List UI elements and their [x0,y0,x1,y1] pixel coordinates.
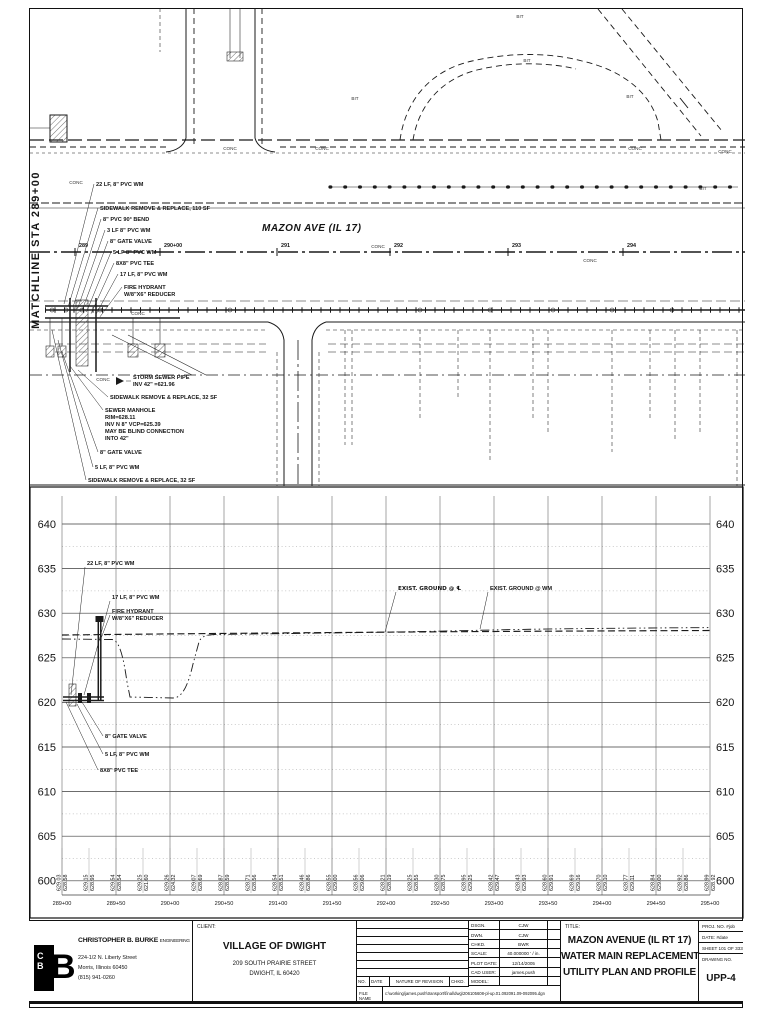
scale-label: SCALE: [469,949,500,957]
spot-elevation: 628.95 [462,875,468,892]
company-name-text: CHRISTOPHER B. BURKE [78,937,158,944]
title-section: TITLE: MAZON AVENUE (IL RT 17) WATER MAI… [561,921,699,1001]
project-number: PROJ. NO. #job [699,921,743,932]
spot-elevation: 629.11 [630,875,636,891]
cad-user-label: CAD USER: [469,968,500,976]
dwn-label: DWN. [469,930,500,938]
profile-callout: 5 LF, 8" PVC WM [105,752,150,758]
plan-callout: INTO 42" [105,436,129,442]
elevation-label-left: 600 [38,876,56,888]
spot-elevation: 628.30 [435,875,441,892]
elevation-label-right: 605 [716,831,734,843]
spot-elevation: 628.86 [306,875,312,892]
revision-chkd-label: CHKD. [450,977,468,986]
profile-station-label: 294+50 [647,901,666,907]
plan-callout: SIDEWALK REMOVE & REPLACE, 110 SF [100,206,211,212]
profile-callout: 22 LF, 8" PVC WM [87,561,135,567]
surface-label-conc: CONC [223,146,237,151]
profile-station-label: 293+00 [485,901,504,907]
matchline-label: MATCHLINE STA 289+00 [30,171,42,329]
plan-callout: STORM SEWER PIPE [133,375,190,381]
spot-elevation: 621.60 [144,875,150,892]
client-section: CLIENT: VILLAGE OF DWIGHT 209 SOUTH PRAI… [193,921,357,1001]
surface-label-conc: CONC [96,377,110,382]
profile-station-label: 289+50 [107,901,126,907]
spot-elevation: 628.51 [279,875,285,892]
profile-callout: 17 LF, 8" PVC WM [112,595,160,601]
company-name: CHRISTOPHER B. BURKE ENGINEERING LTD. [78,937,191,944]
spot-elevation: 629.26 [165,875,171,892]
spot-elevation: 628.70 [597,875,603,892]
plan-station-label: 294 [627,243,636,249]
title-label: TITLE: [565,924,580,930]
surface-label-conc: CONC [583,258,597,263]
plan-callout: 5 LF, 8" PVC WM [95,465,140,471]
elevation-label-right: 610 [716,786,734,798]
spot-elevation: 628.56 [252,875,258,892]
elevation-label-left: 630 [38,608,56,620]
surface-label-bit: BIT [699,186,706,191]
spot-elevation: 629.03 [57,875,63,892]
sheet-title-line3: UTILITY PLAN AND PROFILE [561,965,698,981]
file-name-label: FILE NAME [357,987,383,1001]
surface-label-conc: CONC [371,244,385,249]
plan-callout: SIDEWALK REMOVE & REPLACE, 32 SF [88,478,196,484]
plan-callout: 5 LF 8" PVC WM [113,250,157,256]
spot-elevation: 629.91 [549,875,555,892]
spot-elevation: 628.54 [117,875,123,892]
spot-elevation: 629.25 [138,875,144,892]
drawing-number-label: DRAWING NO. [702,957,732,962]
spot-elevation: 628.95 [90,875,96,892]
spot-elevation: 629.06 [360,875,366,892]
spot-elevation: 628.46 [300,875,306,892]
plan-callout: RIM=628.11 [105,415,135,421]
plan-callout: 8" GATE VALVE [110,239,152,245]
spot-elevation: 624.32 [171,875,177,892]
revision-row [357,921,468,929]
company-phone: (815) 941-0260 [78,975,115,981]
plan-callout: MAY BE BLIND CONNECTION [105,429,184,435]
plan-callout: SIDEWALK REMOVE & REPLACE, 32 SF [110,395,218,401]
title-block: C B B CHRISTOPHER B. BURKE ENGINEERING L… [29,920,743,1004]
plan-callout: FIRE HYDRANT [124,285,166,291]
dsgn-value: CJW [500,921,548,929]
spot-elevation: 629.00 [657,875,663,892]
elevation-label-left: 620 [38,697,56,709]
spot-elevation: 628.25 [408,875,414,892]
profile-callout: 8X8" PVC TEE [100,768,138,774]
company-section: C B B CHRISTOPHER B. BURKE ENGINEERING L… [29,921,193,1001]
spot-elevation: 628.21 [381,875,387,892]
spot-elevation: 628.54 [273,875,279,892]
logo-big-b: B [51,945,76,989]
client-address1: 209 SOUTH PRAIRIE STREET [193,961,356,967]
profile-station-label: 290+00 [161,901,180,907]
profile-station-label: 289+00 [53,901,72,907]
plan-station-label: 290+00 [164,243,182,249]
spot-elevation: 628.87 [219,875,225,892]
model-label: MODEL: [469,977,500,985]
meta-section: PROJ. NO. #job DATE: #date SHEET 101 OF … [699,921,743,1001]
sheet-date: DATE: #date [699,932,743,943]
profile-station-label: 292+00 [377,901,396,907]
elevation-label-right: 625 [716,653,734,665]
spot-elevation: 628.84 [651,875,657,892]
dwn-value: CJW [500,930,548,938]
cad-user-value: james.push [500,968,548,976]
plan-callout: 17 LF, 8" PVC WM [120,272,168,278]
plan-annotations: 289290+00291292293294CONCCONCCONCCONCCON… [52,14,732,484]
client-label: CLIENT: [197,924,216,930]
elevation-label-right: 640 [716,519,734,531]
model-value [500,977,548,985]
spot-elevation: 629.10 [603,875,609,892]
profile-callout: FIRE HYDRANT [112,609,154,615]
revision-no-label: NO. [357,977,370,986]
spot-elevation: 629.15 [84,875,90,892]
surface-label-conc: CONC [315,146,329,151]
spot-elevation: 629.93 [522,875,528,892]
spot-elevation: 628.59 [225,875,231,892]
spot-elevation: 629.54 [111,875,117,892]
spot-elevation: 628.60 [543,875,549,892]
elevation-label-left: 635 [38,563,56,575]
elevation-label-right: 615 [716,742,734,754]
elevation-label-right: 635 [716,563,734,575]
surface-label-conc: CONC [628,146,642,151]
plan-station-label: 293 [512,243,521,249]
spot-elevation: 628.55 [327,875,333,892]
client-name: VILLAGE OF DWIGHT [193,941,356,952]
revision-row [357,945,468,953]
surface-label-conc: CONC [131,311,145,316]
spot-elevation: 628.69 [570,875,576,892]
plan-callout: 22 LF, 8" PVC WM [96,182,144,188]
drawing-number: UPP-4 [699,973,743,984]
spot-elevation: 629.16 [576,875,582,892]
hydrant-symbol [96,616,104,622]
file-path: c:\working\james.push\transport\final\dw… [383,987,560,1001]
plan-callout: INV N 8" VCP=625.39 [105,422,161,428]
elevation-label-left: 605 [38,831,56,843]
file-name-row: FILE NAME c:\working\james.push\transpor… [357,987,561,1001]
plan-callout: W/8"X6" REDUCER [124,292,175,298]
spot-elevation: 629.07 [192,875,198,892]
spot-elevation: 628.69 [198,875,204,892]
profile-station-label: 290+50 [215,901,234,907]
spot-elevation: 628.43 [516,875,522,892]
spot-elevation: 628.99 [705,875,711,892]
spot-elevation: 628.71 [246,875,252,892]
profile-station-label: 295+00 [701,901,720,907]
surface-label-bit: BIT [516,14,523,19]
drawing-sheet: MATCHLINE STA 289+00 MAZON AVE (IL 17) 2… [0,0,770,1024]
scale-value: 40.000000 ' / in. [500,949,548,957]
plan-station-label: 291 [281,243,290,249]
spot-elevation: 628.56 [354,875,360,892]
elevation-label-left: 640 [38,519,56,531]
elevation-label-left: 615 [38,742,56,754]
surface-label-bit: BIT [351,96,358,101]
spot-elevation: 629.47 [495,875,501,892]
profile-station-label: 291+00 [269,901,288,907]
client-address2: DWIGHT, IL 60420 [193,971,356,977]
spot-elevation: 628.19 [387,875,393,892]
profile-station-label: 291+50 [323,901,342,907]
spot-elevation: 628.55 [414,875,420,892]
revision-row [357,969,468,977]
profile-station-label: 292+50 [431,901,450,907]
company-address2: Morris, Illinois 60450 [78,965,127,971]
dsgn-label: DSGN. [469,921,500,929]
plan-callout: SEWER MANHOLE [105,408,156,414]
surface-label-bit: BIT [523,58,530,63]
revision-row [357,929,468,937]
revision-row [357,961,468,969]
elevation-label-right: 620 [716,697,734,709]
revision-row [357,937,468,945]
exist-ground-wm-label: EXIST. GROUND @ WM [490,586,552,592]
plan-callout: 8X8" PVC TEE [116,261,154,267]
spot-elevation: 628.77 [624,875,630,892]
profile-view: 6406406356356306306256256206206156156106… [0,486,770,920]
elevation-label-right: 630 [716,608,734,620]
elevation-label-left: 625 [38,653,56,665]
road-name-label: MAZON AVE (IL 17) [262,223,362,234]
spot-elevation: 629.00 [333,875,339,892]
company-address1: 224-1/2 N. Liberty Street [78,955,137,961]
spot-elevation: 629.25 [468,875,474,892]
revision-row [357,953,468,961]
plan-callout: 3 LF 8" PVC WM [107,228,151,234]
sheet-title-line2: WATER MAIN REPLACEMENT [561,949,698,965]
plot-date-value: 12/14/2005 [500,958,548,966]
surface-label-conc: CONC [718,149,732,154]
profile-callout: 8" GATE VALVE [105,734,147,740]
elevation-label-left: 610 [38,786,56,798]
spot-elevation: 628.58 [63,875,69,892]
profile-grid: 6406406356356306306256256206206156156106… [38,496,735,907]
spot-elevation: 628.86 [684,875,690,892]
plan-callout: INV 42" =621.96 [133,382,175,388]
gate-valve-symbol [78,693,82,703]
revision-date-label: DATE [370,977,390,986]
spot-elevation: 628.75 [441,875,447,892]
chkd-value: BWR [500,940,548,948]
gate-valve-symbol [87,693,91,703]
company-suffix: ENGINEERING LTD. [160,938,191,943]
plan-callout: 8" GATE VALVE [100,450,142,456]
chkd-label: CHKD. [469,940,500,948]
profile-station-label: 293+50 [539,901,558,907]
surface-label-bit: BIT [626,94,633,99]
flow-arrow-icon [116,377,124,385]
spot-elevation: 628.92 [711,875,717,892]
spot-elevation: 628.42 [489,875,495,892]
sheet-number: SHEET 101 OF 333 [699,943,743,954]
revision-header: NO. DATE NATURE OF REVISION CHKD. [357,977,468,987]
surface-label-conc: CONC [69,180,83,185]
spot-elevation: 628.92 [678,875,684,892]
plan-linework [30,8,745,486]
plan-callout: 8" PVC 90° BEND [103,217,149,223]
exist-ground-cl-label: EXIST. GROUND @ ℄ [398,585,461,592]
profile-callout: W/8"X6" REDUCER [112,616,163,622]
revision-nature-label: NATURE OF REVISION [390,977,450,986]
sheet-title-line1: MAZON AVENUE (IL RT 17) [561,933,698,949]
plan-view: MATCHLINE STA 289+00 MAZON AVE (IL 17) 2… [0,0,770,486]
plot-date-label: PLOT DATE: [469,958,500,966]
profile-station-label: 294+00 [593,901,612,907]
plan-station-label: 292 [394,243,403,249]
elevation-label-right: 600 [716,876,734,888]
